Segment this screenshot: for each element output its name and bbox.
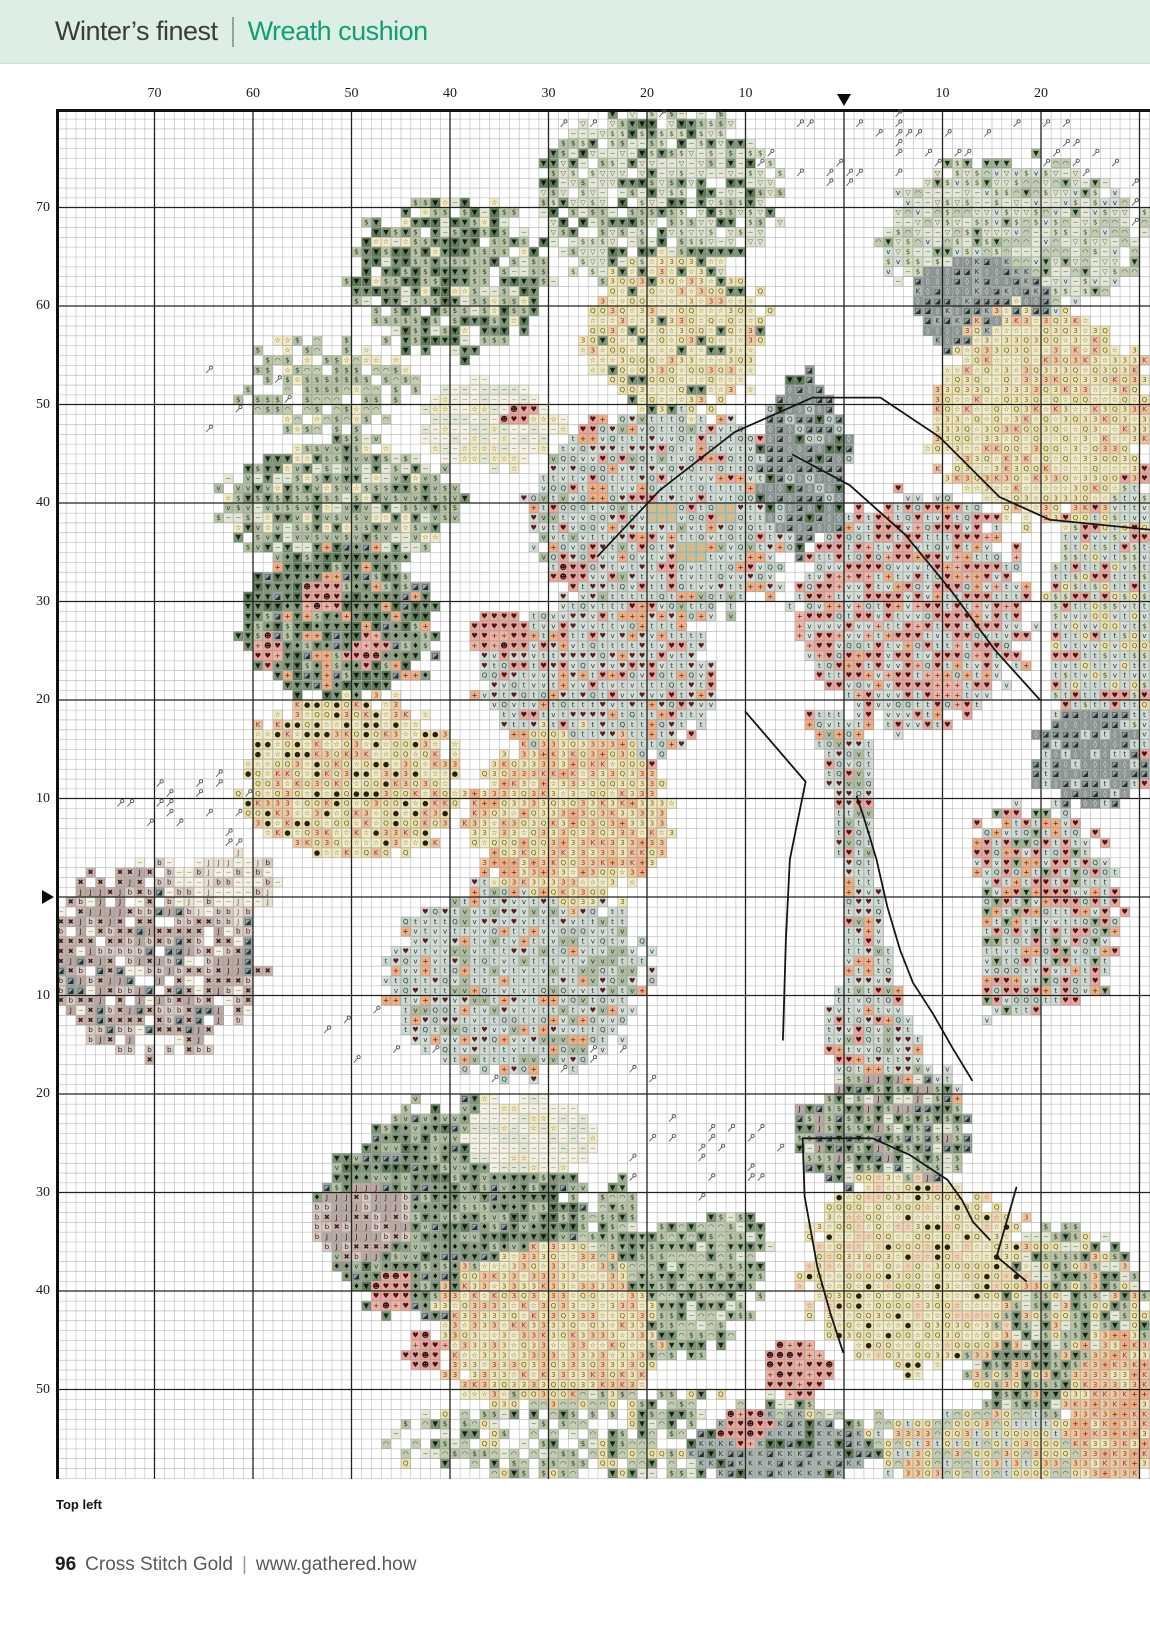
- left-axis-label: 60: [36, 298, 50, 314]
- footer-divider: |: [242, 1554, 247, 1576]
- magazine-name: Cross Stitch Gold: [85, 1554, 233, 1576]
- left-axis-label: 50: [36, 1382, 50, 1398]
- left-axis-label: 10: [36, 988, 50, 1004]
- center-row-marker: [42, 890, 54, 904]
- page-subtitle: Wreath cushion: [248, 16, 428, 47]
- title-divider: [232, 17, 234, 47]
- top-axis-label: 30: [542, 86, 556, 102]
- page-number: 96: [55, 1554, 76, 1576]
- center-column-marker: [837, 94, 851, 106]
- top-axis-label: 20: [1034, 86, 1048, 102]
- top-axis-label: 20: [640, 86, 654, 102]
- top-axis-label: 50: [345, 86, 359, 102]
- left-axis-label: 40: [36, 495, 50, 511]
- left-axis-label: 70: [36, 200, 50, 216]
- left-axis-label: 40: [36, 1283, 50, 1299]
- top-axis-label: 40: [443, 86, 457, 102]
- page-title: Winter’s finest: [55, 16, 218, 47]
- left-axis-label: 20: [36, 1086, 50, 1102]
- top-axis-label: 10: [936, 86, 950, 102]
- left-axis-label: 10: [36, 791, 50, 807]
- page-footer: 96 Cross Stitch Gold | www.gathered.how: [55, 1554, 416, 1576]
- stitch-chart-canvas: [56, 109, 1150, 1479]
- quadrant-caption: Top left: [56, 1497, 102, 1512]
- left-axis-label: 30: [36, 594, 50, 610]
- left-axis-label: 30: [36, 1185, 50, 1201]
- website-url: www.gathered.how: [256, 1554, 417, 1576]
- page-header: Winter’s finest Wreath cushion: [0, 0, 1150, 64]
- left-axis-label: 50: [36, 397, 50, 413]
- top-axis-label: 10: [739, 86, 753, 102]
- left-axis-label: 20: [36, 692, 50, 708]
- top-axis-label: 70: [148, 86, 162, 102]
- top-axis-label: 60: [246, 86, 260, 102]
